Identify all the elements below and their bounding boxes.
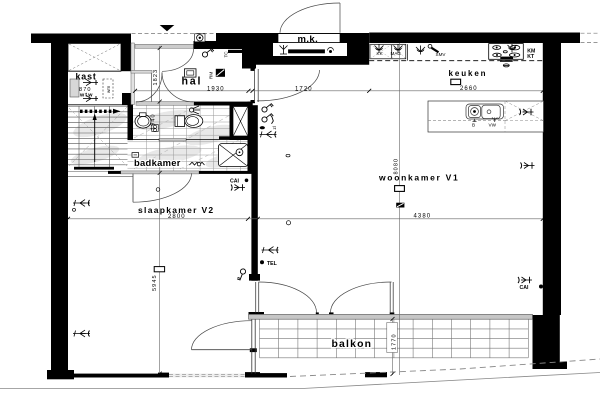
svg-text:kast: kast [76,72,97,82]
svg-text:woonkamer V1: woonkamer V1 [378,172,459,182]
svg-text:balkon: balkon [332,339,373,350]
svg-text:TC: TC [224,51,229,58]
svg-text:KT: KT [527,54,535,60]
svg-text:SMV: SMV [436,52,447,57]
svg-text:VW: VW [489,122,497,127]
svg-text:hal: hal [182,76,203,88]
svg-text:MAG: MAG [391,51,402,56]
svg-text:4380: 4380 [414,214,432,220]
svg-text:1720: 1720 [295,86,313,92]
svg-text:m.k.: m.k. [298,34,319,45]
svg-text:badkamer: badkamer [134,157,181,168]
svg-text:KK: KK [377,51,384,56]
svg-text:keuken: keuken [449,69,488,78]
svg-text:CAI: CAI [520,285,529,291]
svg-text:RM: RM [209,72,214,79]
svg-text:1770: 1770 [392,333,398,350]
svg-text:1823: 1823 [153,69,159,86]
svg-text:wtw: wtw [79,93,93,99]
svg-text:wm: wm [106,86,111,93]
svg-text:1930: 1930 [207,86,225,92]
svg-text:CAI: CAI [230,178,239,184]
svg-text:TEL: TEL [267,261,278,267]
svg-text:1940: 1940 [151,113,157,130]
svg-text:5945: 5945 [152,274,158,291]
svg-text:2660: 2660 [460,86,478,92]
svg-text:zl: zl [272,126,277,129]
svg-text:8080: 8080 [394,158,400,175]
svg-text:2800: 2800 [168,214,186,220]
svg-text:B: B [472,122,475,127]
